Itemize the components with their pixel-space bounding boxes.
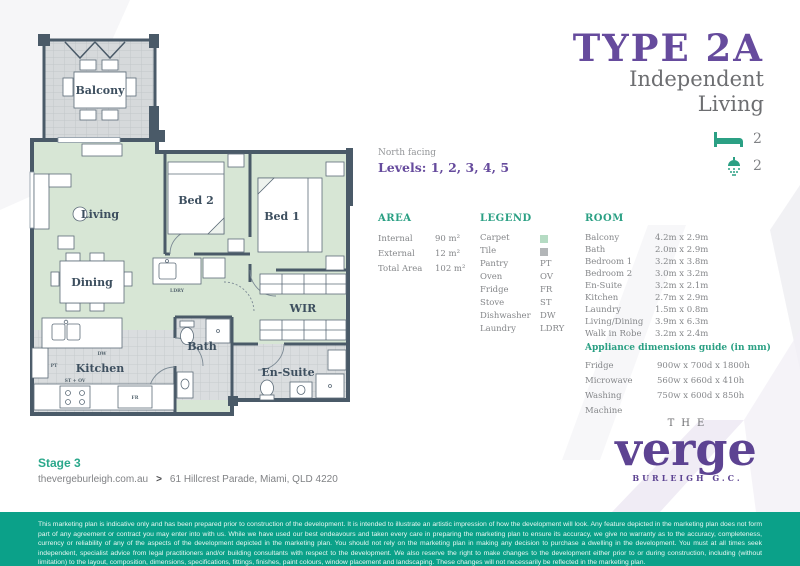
room-label: Balcony <box>585 232 655 244</box>
room-row: Laundry1.5m x 0.8m <box>585 304 755 316</box>
appliance-dimensions: 900w x 700d x 1800h <box>657 359 750 374</box>
brochure-page: Balcony Living Bed 2 Bed 1 Dining WIR Ba… <box>0 0 800 566</box>
room-label: Bedroom 2 <box>585 268 655 280</box>
area-row: External12 m² <box>378 247 478 262</box>
page-title: TYPE 2A <box>573 30 764 67</box>
appliance-row: Fridge900w x 700d x 1800h <box>585 359 790 374</box>
floorplan: Balcony Living Bed 2 Bed 1 Dining WIR Ba… <box>20 22 365 426</box>
room-row: Kitchen2.7m x 2.9m <box>585 292 755 304</box>
legend-code: ST <box>540 297 552 310</box>
website-link[interactable]: thevergeburleigh.com.au <box>38 474 148 485</box>
area-row: Total Area102 m² <box>378 262 478 277</box>
levels-note: Levels: 1, 2, 3, 4, 5 <box>378 160 509 175</box>
floorplan-label-dining: Dining <box>71 276 113 289</box>
room-row: Bedroom 23.0m x 3.2m <box>585 268 755 280</box>
verge-logo: THE verge BURLEIGH G.C. <box>612 418 760 483</box>
room-dimensions: 3.0m x 3.2m <box>655 268 708 280</box>
room-label: Kitchen <box>585 292 655 304</box>
room-row: Living/Dining3.9m x 6.3m <box>585 316 755 328</box>
room-row: Balcony4.2m x 2.9m <box>585 232 755 244</box>
room-row: Walk in Robe3.2m x 2.4m <box>585 328 755 340</box>
appliance-label: Microwave <box>585 374 657 389</box>
room-dimensions: 3.2m x 3.8m <box>655 256 708 268</box>
room-row: En-Suite3.2m x 2.1m <box>585 280 755 292</box>
legend-code: DW <box>540 310 556 323</box>
floorplan-label-fr: FR <box>132 395 139 401</box>
bedroom-count-row: 2 <box>573 131 764 148</box>
room-dimensions: 2.7m x 2.9m <box>655 292 708 304</box>
legend-label: Fridge <box>480 284 540 297</box>
area-value: 102 m² <box>435 262 465 277</box>
legend-row: OvenOV <box>480 271 582 284</box>
appliance-row: Washing Machine750w x 600d x 850h <box>585 389 790 419</box>
legend-row: LaundryLDRY <box>480 323 582 336</box>
room-dimensions: 3.9m x 6.3m <box>655 316 708 328</box>
room-row: Bedroom 13.2m x 3.8m <box>585 256 755 268</box>
appliance-label: Fridge <box>585 359 657 374</box>
floorplan-label-dw: DW <box>98 351 108 357</box>
chevron-right-icon: > <box>156 474 162 485</box>
legend-row: PantryPT <box>480 258 582 271</box>
logo-location: BURLEIGH G.C. <box>615 473 760 483</box>
legend-row: StoveST <box>480 297 582 310</box>
room-section: ROOM Balcony4.2m x 2.9m Bath2.0m x 2.9m … <box>585 213 755 340</box>
window <box>30 172 34 228</box>
area-label: Internal <box>378 232 435 247</box>
subtitle-line1: Independent <box>573 67 764 92</box>
legend-label: Tile <box>480 245 540 258</box>
floorplan-label-st-ov: ST + OV <box>65 378 86 384</box>
legend-label: Laundry <box>480 323 540 336</box>
room-label: Bedroom 1 <box>585 256 655 268</box>
room-counts: 2 2 <box>573 131 764 176</box>
room-label: Bath <box>585 244 655 256</box>
area-row: Internal90 m² <box>378 232 478 247</box>
carpet-swatch <box>540 235 548 243</box>
legend-code: PT <box>540 258 551 271</box>
stage-label: Stage 3 <box>38 456 338 470</box>
area-heading: AREA <box>378 213 478 224</box>
area-section: AREA Internal90 m² External12 m² Total A… <box>378 213 478 277</box>
floorplan-label-bed1: Bed 1 <box>264 210 299 223</box>
floorplan-drawing: Balcony Living Bed 2 Bed 1 Dining WIR Ba… <box>20 22 365 422</box>
legend-label: Stove <box>480 297 540 310</box>
floorplan-label-ensuite: En-Suite <box>261 366 314 379</box>
shower-icon <box>725 157 743 176</box>
appliance-label: Washing Machine <box>585 389 657 419</box>
area-label: Total Area <box>378 262 435 277</box>
tile-swatch <box>540 248 548 256</box>
legend-row: Tile <box>480 245 582 258</box>
title-block: TYPE 2A Independent Living 2 <box>573 30 764 176</box>
room-label: En-Suite <box>585 280 655 292</box>
footer: Stage 3 thevergeburleigh.com.au > 61 Hil… <box>38 456 338 485</box>
room-row: Bath2.0m x 2.9m <box>585 244 755 256</box>
appliance-dimensions: 750w x 600d x 850h <box>657 389 744 419</box>
floorplan-label-pt: PT <box>51 363 58 369</box>
bedroom-count: 2 <box>753 131 764 147</box>
legend-label: Oven <box>480 271 540 284</box>
legend-label: Carpet <box>480 232 540 245</box>
legend-code: LDRY <box>540 323 564 336</box>
floorplan-label-balcony: Balcony <box>75 84 125 97</box>
room-dimensions: 4.2m x 2.9m <box>655 232 708 244</box>
room-label: Walk in Robe <box>585 328 655 340</box>
legend-heading: LEGEND <box>480 213 582 224</box>
legend-label: Dishwasher <box>480 310 540 323</box>
address-text: 61 Hillcrest Parade, Miami, QLD 4220 <box>170 474 338 485</box>
legend-label: Pantry <box>480 258 540 271</box>
room-dimensions: 3.2m x 2.1m <box>655 280 708 292</box>
legend-code: FR <box>540 284 552 297</box>
disclaimer-bar: This marketing plan is indicative only a… <box>0 512 800 566</box>
appliance-heading: Appliance dimensions guide (in mm) <box>585 343 790 353</box>
room-dimensions: 3.2m x 2.4m <box>655 328 708 340</box>
appliance-row: Microwave560w x 660d x 410h <box>585 374 790 389</box>
logo-name: verge <box>612 430 760 469</box>
floorplan-label-bath: Bath <box>187 340 217 353</box>
subtitle-line2: Living <box>573 92 764 117</box>
room-label: Laundry <box>585 304 655 316</box>
floorplan-label-living: Living <box>81 208 119 221</box>
address-line: thevergeburleigh.com.au > 61 Hillcrest P… <box>38 474 338 485</box>
area-label: External <box>378 247 435 262</box>
room-label: Living/Dining <box>585 316 655 328</box>
area-value: 90 m² <box>435 232 460 247</box>
bathroom-count: 2 <box>753 158 764 174</box>
floorplan-label-bed2: Bed 2 <box>178 194 213 207</box>
legend-code: OV <box>540 271 553 284</box>
sliding-door <box>58 138 120 143</box>
room-dimensions: 2.0m x 2.9m <box>655 244 708 256</box>
floorplan-label-wir: WIR <box>289 302 317 315</box>
room-dimensions: 1.5m x 0.8m <box>655 304 708 316</box>
area-value: 12 m² <box>435 247 460 262</box>
floorplan-label-ldry: LDRY <box>170 288 185 294</box>
legend-row: Carpet <box>480 232 582 245</box>
facing-note: North facing <box>378 148 436 158</box>
floorplan-label-kitchen: Kitchen <box>76 362 125 375</box>
bathroom-count-row: 2 <box>573 157 764 176</box>
room-heading: ROOM <box>585 213 755 224</box>
legend-row: FridgeFR <box>480 284 582 297</box>
appliance-dimensions: 560w x 660d x 410h <box>657 374 744 389</box>
legend-section: LEGEND Carpet Tile PantryPT OvenOV Fridg… <box>480 213 582 336</box>
appliance-section: Appliance dimensions guide (in mm) Fridg… <box>585 343 790 419</box>
bed-icon <box>713 131 743 148</box>
legend-row: DishwasherDW <box>480 310 582 323</box>
